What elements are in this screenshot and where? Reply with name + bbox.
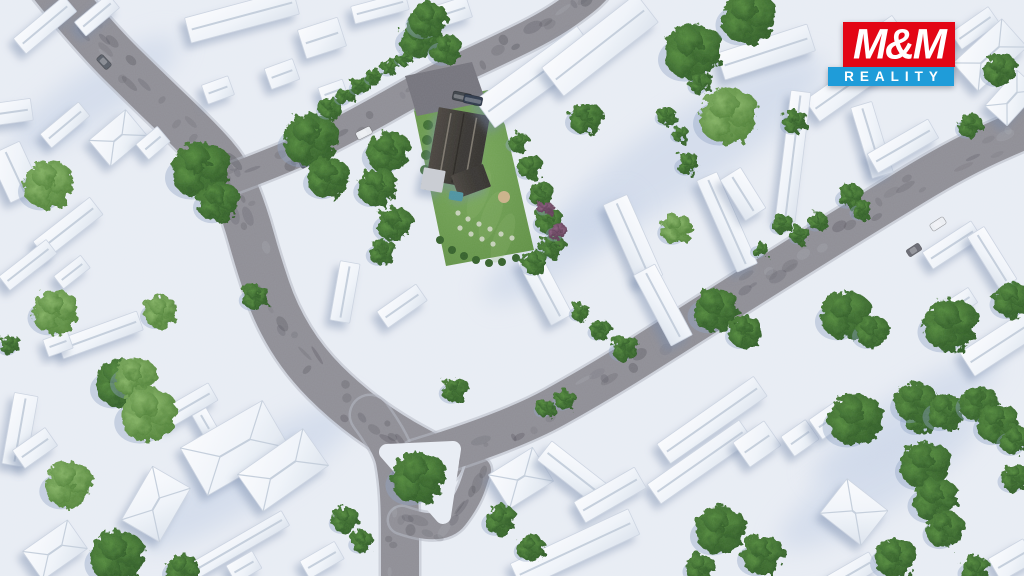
brand-logo-blue-box: REALITY bbox=[828, 67, 954, 86]
brand-logo-subtitle: REALITY bbox=[838, 70, 944, 84]
brand-logo: M&M REALITY bbox=[828, 22, 954, 86]
aerial-scene bbox=[0, 0, 1024, 576]
film-grain-overlay bbox=[0, 0, 1024, 576]
aerial-render-stage: M&M REALITY bbox=[0, 0, 1024, 576]
brand-logo-red-box: M&M bbox=[843, 22, 955, 67]
brand-logo-wordmark: M&M bbox=[853, 23, 945, 66]
